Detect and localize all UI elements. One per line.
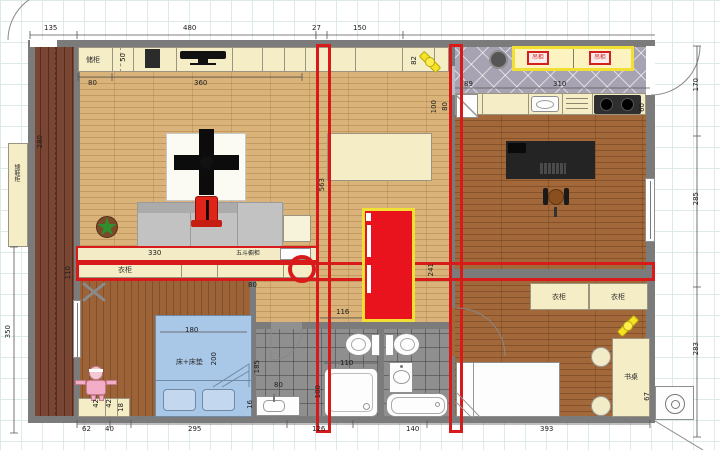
dimension-label: 285 [692, 192, 700, 205]
wardrobe-right-1[interactable]: 衣柜 [530, 283, 589, 310]
entry-strip-joint-line [55, 47, 56, 415]
shoe-cabinet-label: 矮鞋柜 [12, 164, 20, 182]
child-arm [75, 380, 86, 385]
cabinet-divider [573, 49, 574, 68]
dim-line-top [30, 31, 655, 39]
kitchen-sink[interactable] [531, 96, 559, 112]
counter-divider [592, 93, 593, 115]
child-arm [106, 380, 117, 385]
cabinet-divider [262, 47, 263, 72]
door-opening-kitchen-entry [646, 46, 655, 95]
sofa-chaise[interactable] [237, 202, 283, 252]
kitchen-box-label: 吊柜 [594, 54, 606, 61]
corridor-cabinet[interactable] [327, 133, 432, 181]
dimension-label: 350 [4, 325, 12, 338]
desk-right-label: 书桌 [624, 373, 638, 381]
child-leg [91, 395, 96, 401]
dimension-label: 135 [44, 24, 57, 32]
dimension-label: 140 [406, 425, 419, 433]
counter-divider [562, 93, 563, 115]
dimension-label: 295 [188, 425, 201, 433]
dimension-label: 40 [105, 425, 114, 433]
highlighted-wall-vertical-1[interactable] [316, 44, 331, 433]
toilet-right[interactable] [393, 333, 420, 356]
kitchen-wall-cabinet[interactable]: 吊柜 吊柜 [512, 46, 634, 71]
bathroom-right-sink[interactable] [389, 362, 413, 393]
dimension-label: 150 [353, 24, 366, 32]
storage-cabinet-label: 储柜 [86, 56, 100, 64]
door-arc-kitchen [651, 46, 700, 95]
drawer-line [566, 98, 588, 99]
desk-study[interactable] [506, 141, 595, 179]
tub-drain [435, 402, 440, 407]
desk-right[interactable]: 书桌 [612, 338, 650, 417]
cabinet-divider [133, 47, 134, 72]
shoe-cabinet[interactable]: 矮鞋柜 [8, 143, 28, 247]
counter-divider [482, 93, 483, 115]
shower-drain [363, 403, 370, 410]
red-appliance-base [191, 220, 222, 227]
dimension-label: 393 [540, 425, 553, 433]
bed-left[interactable] [155, 315, 252, 417]
kitchen-appliance-box-2[interactable]: 吊柜 [589, 51, 611, 65]
floor-drain-icon [671, 400, 680, 409]
wardrobe-right-2[interactable]: 衣柜 [589, 283, 648, 310]
tv[interactable] [180, 51, 226, 59]
monitor [508, 143, 526, 153]
door-opening-entry [30, 40, 57, 47]
dimension-label: 27 [312, 24, 321, 32]
bedroom-left-cabinets[interactable] [78, 398, 130, 417]
cabinet-divider [232, 47, 233, 72]
keyboard [540, 163, 566, 174]
wardrobe-right-1-label: 衣柜 [552, 293, 566, 301]
dim-line-left [10, 247, 18, 433]
ceiling-fan-hub [200, 156, 213, 169]
cabinet-divider-dashed [120, 47, 121, 72]
wall-left[interactable] [28, 40, 35, 423]
five-drawer-chest-label: 五斗橱柜 [236, 250, 260, 258]
side-table[interactable] [283, 215, 311, 242]
cabinet-divider [355, 47, 356, 72]
pillow [163, 389, 196, 411]
dimension-label: 62 [82, 425, 91, 433]
kitchen-appliance-box-1[interactable]: 吊柜 [527, 51, 549, 65]
wall-bottom[interactable] [28, 416, 655, 423]
cabinet-divider [402, 47, 403, 72]
child-hat-band [89, 369, 103, 372]
utility-box[interactable] [655, 386, 694, 420]
wardrobe-right-2-label: 衣柜 [611, 293, 625, 301]
dimension-label: 283 [692, 342, 700, 355]
kitchen-box-label: 吊柜 [532, 54, 544, 61]
child-leg [99, 395, 104, 401]
bed-right[interactable] [456, 362, 560, 417]
cabinet-divider [176, 47, 177, 72]
cabinet-divider [305, 47, 306, 72]
dimension-label: 480 [183, 24, 196, 32]
window-right-wall[interactable] [645, 178, 655, 242]
drawer-line [566, 108, 588, 109]
toilet-left-tank [371, 334, 380, 356]
range-hood[interactable] [489, 50, 508, 69]
wall-entry-inner[interactable] [74, 45, 80, 417]
highlighted-shaft[interactable] [362, 208, 415, 322]
bathroom-left-sink[interactable] [256, 396, 300, 416]
cabinet-divider [112, 47, 113, 72]
drawer-line [566, 103, 588, 104]
tv-base [190, 63, 216, 65]
door-arc-entry [8, 0, 57, 40]
dim-line-right [693, 46, 701, 437]
toilet-left[interactable] [345, 333, 372, 356]
cabinet-divider [284, 47, 285, 72]
highlighted-wall-vertical-2[interactable] [449, 44, 463, 433]
bathtub[interactable] [386, 393, 448, 417]
bed-left-label: 床+床垫 [176, 358, 203, 366]
dimension-label: 170 [692, 78, 700, 91]
counter-divider [528, 93, 529, 115]
cabinet-appliance[interactable] [145, 49, 160, 68]
window-bedroom-left[interactable] [73, 300, 81, 358]
child-body [86, 380, 106, 395]
stool[interactable] [591, 347, 611, 367]
shower-tray[interactable] [324, 368, 378, 417]
stool[interactable] [591, 396, 611, 416]
corner-diagonal [655, 421, 703, 450]
cooktop[interactable] [594, 95, 641, 114]
door-opening-bathroom-left [271, 322, 302, 329]
floor-plan-canvas: 矮鞋柜 储柜 吊柜 吊柜 [0, 0, 720, 450]
pillow [202, 389, 235, 411]
